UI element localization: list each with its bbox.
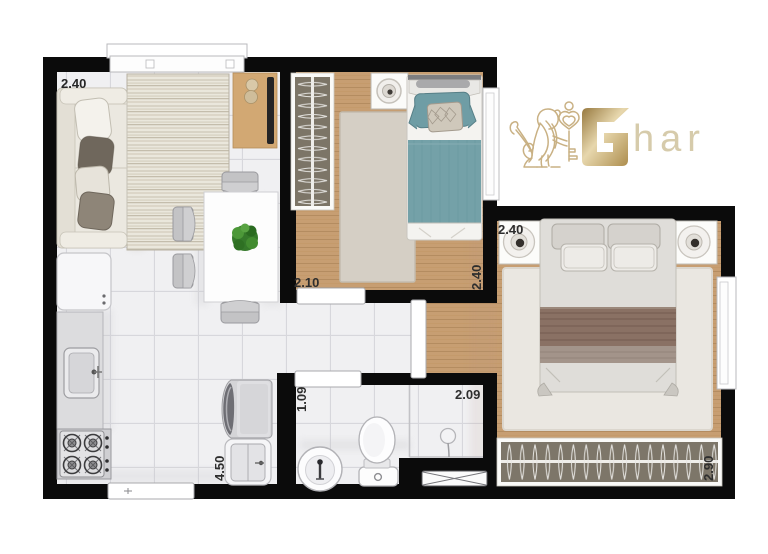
svg-text:2.40: 2.40	[61, 76, 86, 91]
svg-text:2.09: 2.09	[455, 387, 480, 402]
svg-text:1.09: 1.09	[294, 387, 309, 412]
svg-text:2.90: 2.90	[701, 456, 716, 481]
svg-text:2.10: 2.10	[294, 275, 319, 290]
svg-text:har: har	[633, 118, 706, 160]
svg-text:2.40: 2.40	[498, 222, 523, 237]
svg-text:4.50: 4.50	[212, 456, 227, 481]
svg-text:2.40: 2.40	[469, 265, 484, 290]
